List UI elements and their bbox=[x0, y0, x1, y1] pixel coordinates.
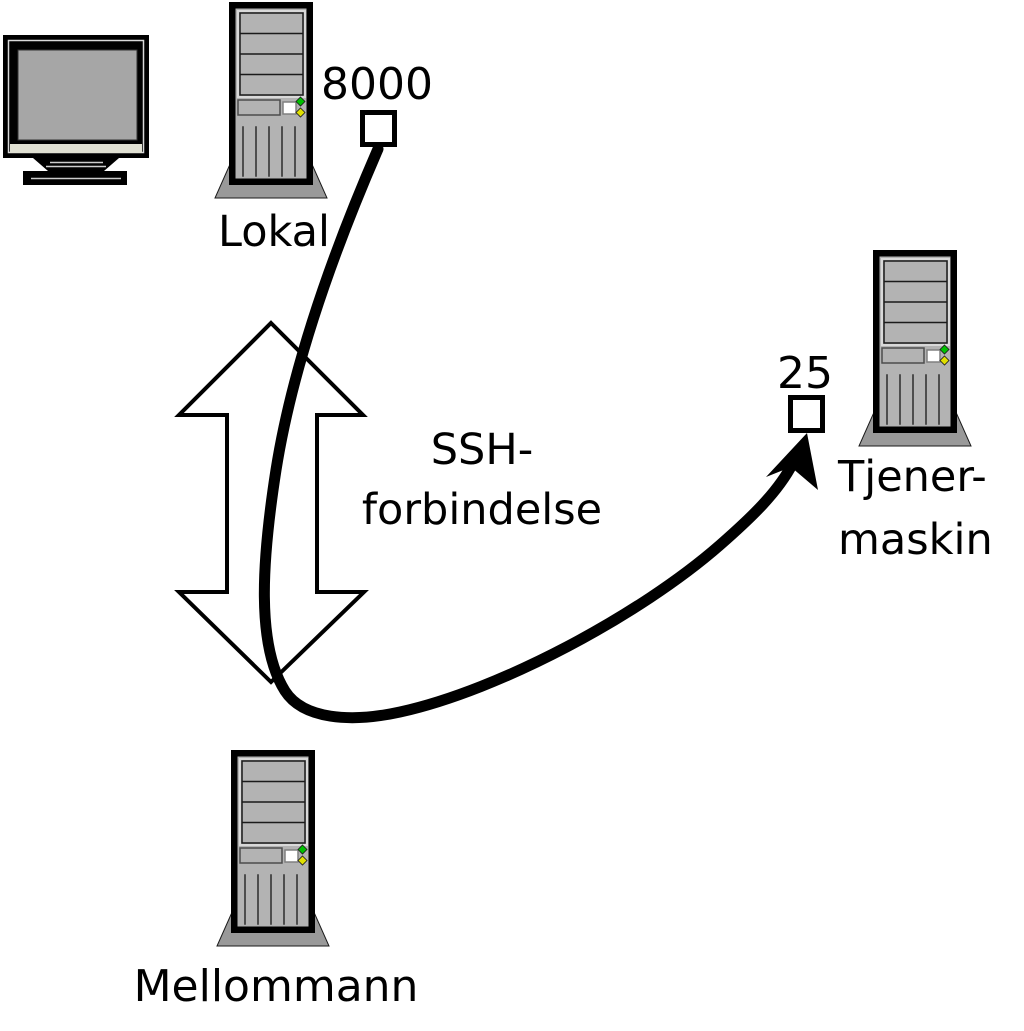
diagram-page: 8000 Lokal SSH- forbindelse 25 Tjener- m… bbox=[0, 0, 1024, 1031]
local-server-icon bbox=[215, 2, 327, 198]
monitor-screen bbox=[18, 50, 137, 140]
port-25-box bbox=[791, 398, 823, 431]
port-8000-label: 8000 bbox=[321, 59, 433, 110]
diagram-canvas: 8000 Lokal SSH- forbindelse 25 Tjener- m… bbox=[0, 0, 1024, 1031]
local-label: Lokal bbox=[218, 207, 330, 257]
server-label-line1: Tjener- bbox=[837, 452, 987, 502]
monitor-strip bbox=[10, 144, 142, 153]
ssh-label-line1: SSH- bbox=[431, 425, 533, 475]
tunnel-arrowhead-icon bbox=[766, 433, 818, 490]
monitor-neck bbox=[33, 158, 119, 171]
server-machine-icon bbox=[859, 250, 971, 446]
server-label-line2: maskin bbox=[838, 515, 993, 565]
monitor-icon bbox=[3, 35, 149, 185]
port-8000-box bbox=[363, 113, 395, 145]
middleman-server-icon bbox=[217, 750, 329, 946]
ssh-label-line2: forbindelse bbox=[362, 485, 602, 535]
port-25-label: 25 bbox=[777, 348, 833, 399]
middleman-label: Mellommann bbox=[134, 961, 419, 1012]
